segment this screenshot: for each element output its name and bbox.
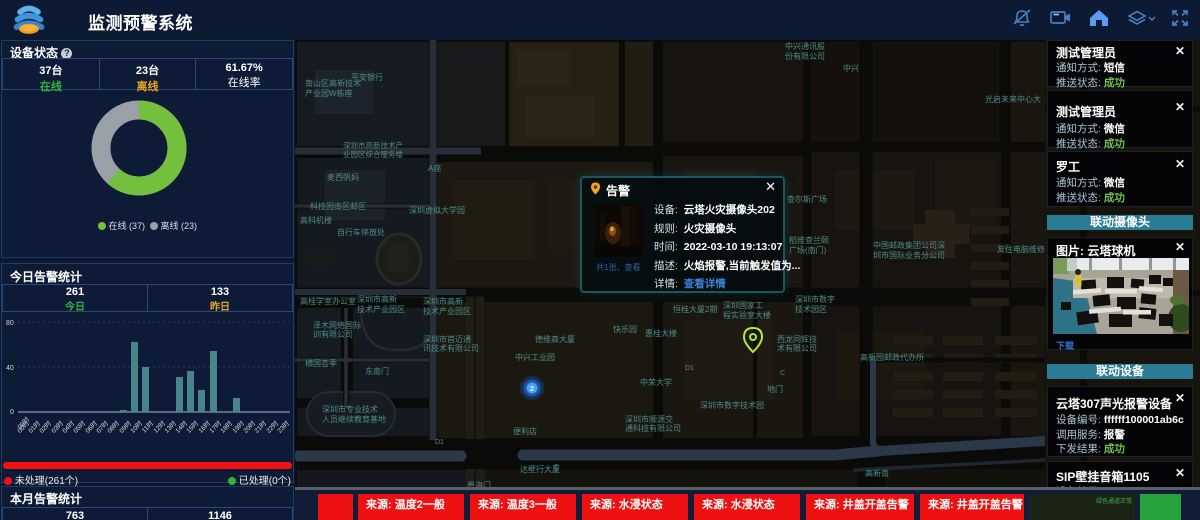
svg-text:技术园区: 技术园区: [795, 304, 827, 314]
svg-text:深圳虚拟大学园: 深圳虚拟大学园: [409, 205, 465, 215]
svg-text:光启未来中心大: 光启未来中心大: [985, 94, 1041, 104]
svg-text:高桂学室办公室: 高桂学室办公室: [300, 296, 356, 306]
svg-text:圳市国际业务分公司: 圳市国际业务分公司: [873, 250, 945, 260]
svg-text:高科机楼: 高科机楼: [300, 215, 332, 225]
svg-text:中荣大学: 中荣大学: [640, 377, 672, 387]
svg-text:D1: D1: [685, 365, 694, 372]
svg-text:训有限公司: 训有限公司: [313, 329, 353, 339]
svg-text:自行车停放处: 自行车停放处: [337, 227, 385, 237]
svg-text:程实验室大楼: 程实验室大楼: [723, 310, 771, 320]
svg-text:德维森大厦: 德维森大厦: [535, 334, 575, 344]
svg-text:技术产业园区: 技术产业园区: [423, 306, 471, 316]
svg-text:东南门: 东南门: [365, 366, 389, 376]
svg-text:高新园邮政代办所: 高新园邮政代办所: [860, 352, 924, 362]
svg-text:通科技有限公司: 通科技有限公司: [625, 423, 681, 433]
svg-text:科技园南区邮区: 科技园南区邮区: [310, 201, 366, 211]
svg-text:惠桂大楼: 惠桂大楼: [645, 328, 677, 338]
svg-text:泽木网络国际: 泽木网络国际: [313, 320, 361, 330]
svg-text:份有限公司: 份有限公司: [785, 51, 825, 61]
svg-text:麦西帆妈: 麦西帆妈: [327, 172, 359, 182]
svg-text:D1: D1: [435, 439, 444, 446]
svg-text:80: 80: [6, 320, 14, 327]
svg-text:恒桂大厦2期: 恒桂大厦2期: [673, 304, 717, 314]
svg-text:深圳国家工: 深圳国家工: [723, 300, 763, 310]
svg-text:A座: A座: [428, 163, 441, 173]
svg-text:中国邮政集团公司深: 中国邮政集团公司深: [873, 240, 945, 250]
svg-text:技术产业园区: 技术产业园区: [357, 304, 405, 314]
svg-text:深圳市专业技术: 深圳市专业技术: [322, 404, 378, 414]
svg-text:高新南: 高新南: [865, 468, 889, 478]
svg-text:2: 2: [530, 384, 534, 393]
svg-text:中兴: 中兴: [843, 63, 859, 73]
svg-text:深圳市高新技术产: 深圳市高新技术产: [343, 140, 403, 150]
svg-text:平安银行: 平安银行: [351, 72, 383, 82]
svg-text:中兴工业园: 中兴工业园: [515, 352, 555, 362]
svg-text:40: 40: [6, 365, 14, 372]
svg-text:业园区综合服务楼: 业园区综合服务楼: [343, 149, 403, 159]
svg-text:地门: 地门: [767, 384, 783, 394]
svg-text:深圳市高新: 深圳市高新: [357, 294, 397, 304]
svg-text:深圳市顺源交: 深圳市顺源交: [625, 414, 673, 424]
svg-text:人员继续教育基地: 人员继续教育基地: [322, 414, 386, 424]
svg-text:深圳市数字: 深圳市数字: [795, 294, 835, 304]
svg-text:深圳市首迈通: 深圳市首迈通: [423, 334, 471, 344]
svg-text:中兴通讯股: 中兴通讯股: [785, 41, 825, 51]
svg-text:讯技术有限公司: 讯技术有限公司: [423, 343, 479, 353]
svg-text:便利店: 便利店: [513, 426, 537, 436]
svg-text:深圳市高新: 深圳市高新: [423, 296, 463, 306]
svg-text:横国杏季: 横国杏季: [305, 358, 337, 368]
svg-text:术有限公司: 术有限公司: [777, 343, 817, 353]
svg-text:西龙同辉技: 西龙同辉技: [777, 334, 817, 344]
svg-text:产业园W栋座: 产业园W栋座: [305, 88, 353, 98]
svg-text:深圳市数字技术园: 深圳市数字技术园: [700, 400, 764, 410]
svg-text:C: C: [554, 464, 559, 471]
svg-text:快乐园: 快乐园: [613, 324, 637, 334]
svg-text:C: C: [780, 370, 785, 377]
svg-text:友住电脑维修: 友住电脑维修: [997, 244, 1045, 254]
